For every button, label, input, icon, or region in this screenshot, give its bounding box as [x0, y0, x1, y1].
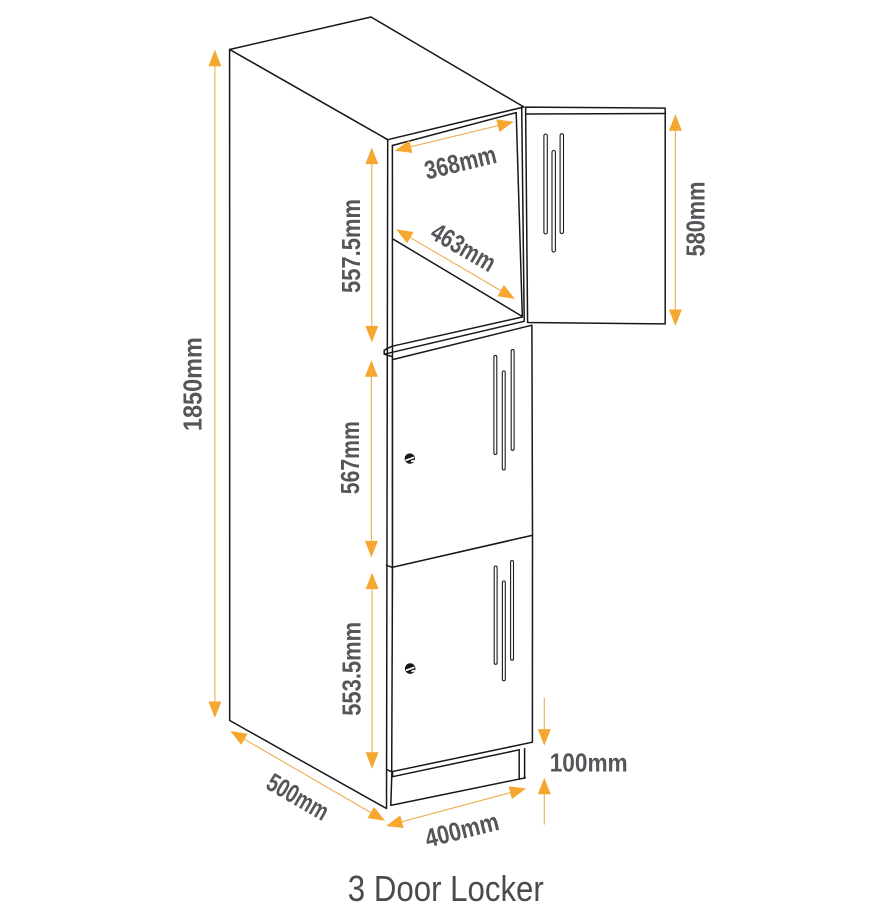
svg-text:557.5mm: 557.5mm — [336, 199, 366, 293]
svg-text:3 Door Locker: 3 Door Locker — [348, 868, 544, 909]
svg-text:567mm: 567mm — [335, 421, 365, 494]
svg-text:100mm: 100mm — [550, 748, 628, 778]
svg-text:580mm: 580mm — [681, 182, 711, 257]
svg-text:553.5mm: 553.5mm — [337, 622, 367, 716]
svg-text:1850mm: 1850mm — [178, 337, 208, 431]
